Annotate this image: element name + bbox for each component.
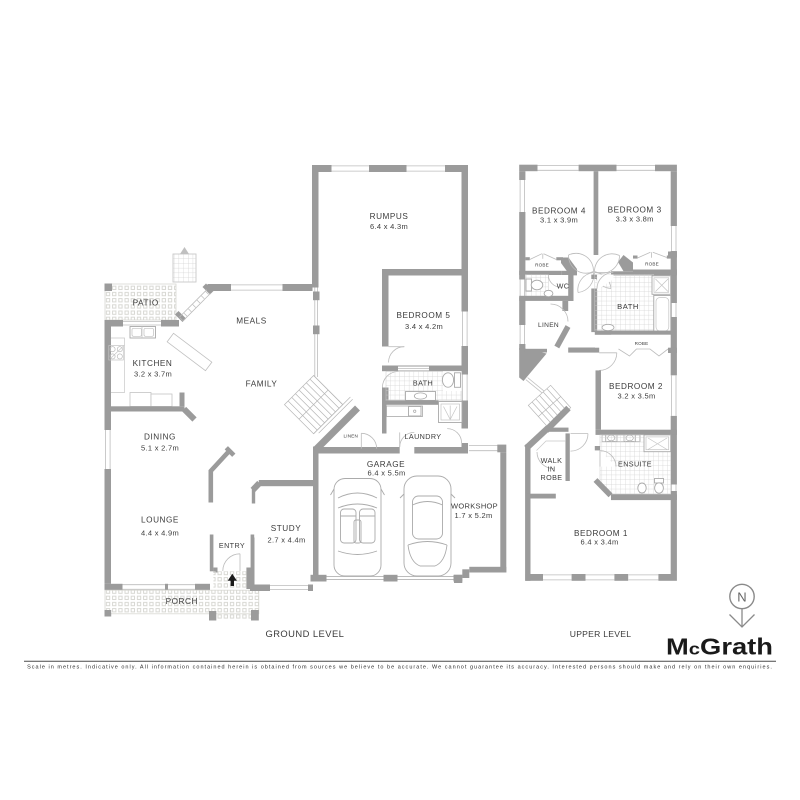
svg-text:MEALS: MEALS <box>236 317 267 326</box>
svg-text:5.1 x 2.7m: 5.1 x 2.7m <box>141 444 179 453</box>
svg-text:6.4 x 5.5m: 6.4 x 5.5m <box>367 468 405 477</box>
svg-text:KITCHEN: KITCHEN <box>133 359 173 368</box>
svg-text:UPPER LEVEL: UPPER LEVEL <box>570 629 632 639</box>
svg-text:ENSUITE: ENSUITE <box>618 460 652 469</box>
svg-text:3.2 x 3.7m: 3.2 x 3.7m <box>134 370 172 379</box>
svg-text:BATH: BATH <box>413 378 433 387</box>
svg-text:WC: WC <box>557 281 570 290</box>
svg-text:ROBE: ROBE <box>535 263 549 268</box>
svg-text:ROBE: ROBE <box>645 261 659 266</box>
svg-text:BEDROOM 2: BEDROOM 2 <box>609 382 663 391</box>
svg-text:BEDROOM 3: BEDROOM 3 <box>608 205 662 214</box>
svg-text:Scale in metres. Indicative on: Scale in metres. Indicative only. All in… <box>27 664 773 670</box>
svg-text:6.4 x 4.3m: 6.4 x 4.3m <box>370 222 408 231</box>
svg-text:BEDROOM 5: BEDROOM 5 <box>396 311 450 320</box>
svg-text:PORCH: PORCH <box>166 597 198 606</box>
svg-text:RUMPUS: RUMPUS <box>370 212 409 221</box>
svg-text:3.1 x 3.9m: 3.1 x 3.9m <box>540 216 578 225</box>
svg-text:1.7 x 5.2m: 1.7 x 5.2m <box>454 511 492 520</box>
svg-text:DINING: DINING <box>144 433 176 442</box>
svg-text:ROBE: ROBE <box>541 473 563 482</box>
svg-text:6.4 x 3.4m: 6.4 x 3.4m <box>580 538 618 547</box>
svg-text:McGrath: McGrath <box>666 634 773 660</box>
svg-text:LOUNGE: LOUNGE <box>141 516 179 525</box>
svg-text:BATH: BATH <box>617 302 639 311</box>
svg-text:3.4 x 4.2m: 3.4 x 4.2m <box>405 322 443 331</box>
svg-text:LINEN: LINEN <box>344 434 359 439</box>
svg-text:STUDY: STUDY <box>271 524 302 533</box>
svg-text:N: N <box>737 589 746 604</box>
svg-text:GROUND LEVEL: GROUND LEVEL <box>265 628 344 639</box>
svg-text:LAUNDRY: LAUNDRY <box>404 432 441 441</box>
svg-text:ENTRY: ENTRY <box>219 541 245 550</box>
svg-text:3.3 x 3.8m: 3.3 x 3.8m <box>616 214 654 223</box>
svg-text:FAMILY: FAMILY <box>246 380 278 389</box>
svg-text:2.7 x 4.4m: 2.7 x 4.4m <box>267 536 305 545</box>
svg-text:BEDROOM 4: BEDROOM 4 <box>532 207 586 216</box>
svg-text:WORKSHOP: WORKSHOP <box>451 502 498 511</box>
svg-text:ROBE: ROBE <box>635 341 649 346</box>
svg-text:3.2 x 3.5m: 3.2 x 3.5m <box>617 392 655 401</box>
svg-text:4.4 x 4.9m: 4.4 x 4.9m <box>141 529 179 538</box>
svg-text:LINEN: LINEN <box>538 322 559 329</box>
svg-text:PATIO: PATIO <box>133 299 159 308</box>
